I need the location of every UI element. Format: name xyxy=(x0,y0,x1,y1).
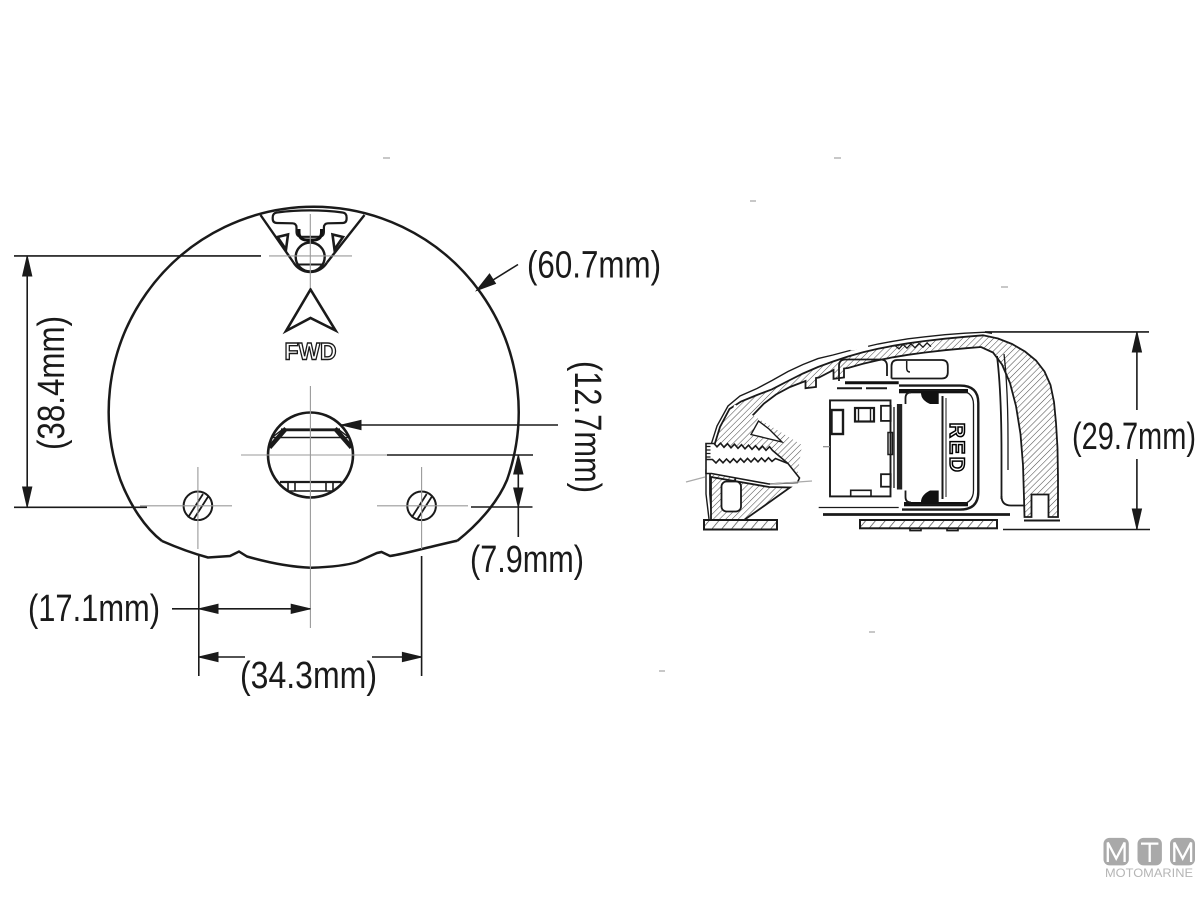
svg-text:RED: RED xyxy=(945,423,968,475)
svg-text:FWD: FWD xyxy=(285,339,337,366)
svg-text:(38.4mm): (38.4mm) xyxy=(31,316,73,450)
svg-text:(7.9mm): (7.9mm) xyxy=(470,539,584,581)
svg-text:(17.1mm): (17.1mm) xyxy=(28,588,160,630)
svg-text:(60.7mm): (60.7mm) xyxy=(527,245,661,287)
svg-text:(29.7mm): (29.7mm) xyxy=(1072,416,1196,458)
svg-text:(34.3mm): (34.3mm) xyxy=(240,655,377,697)
svg-text:MOTOMARINE: MOTOMARINE xyxy=(1105,866,1193,880)
svg-text:(12.7mm): (12.7mm) xyxy=(566,361,608,493)
